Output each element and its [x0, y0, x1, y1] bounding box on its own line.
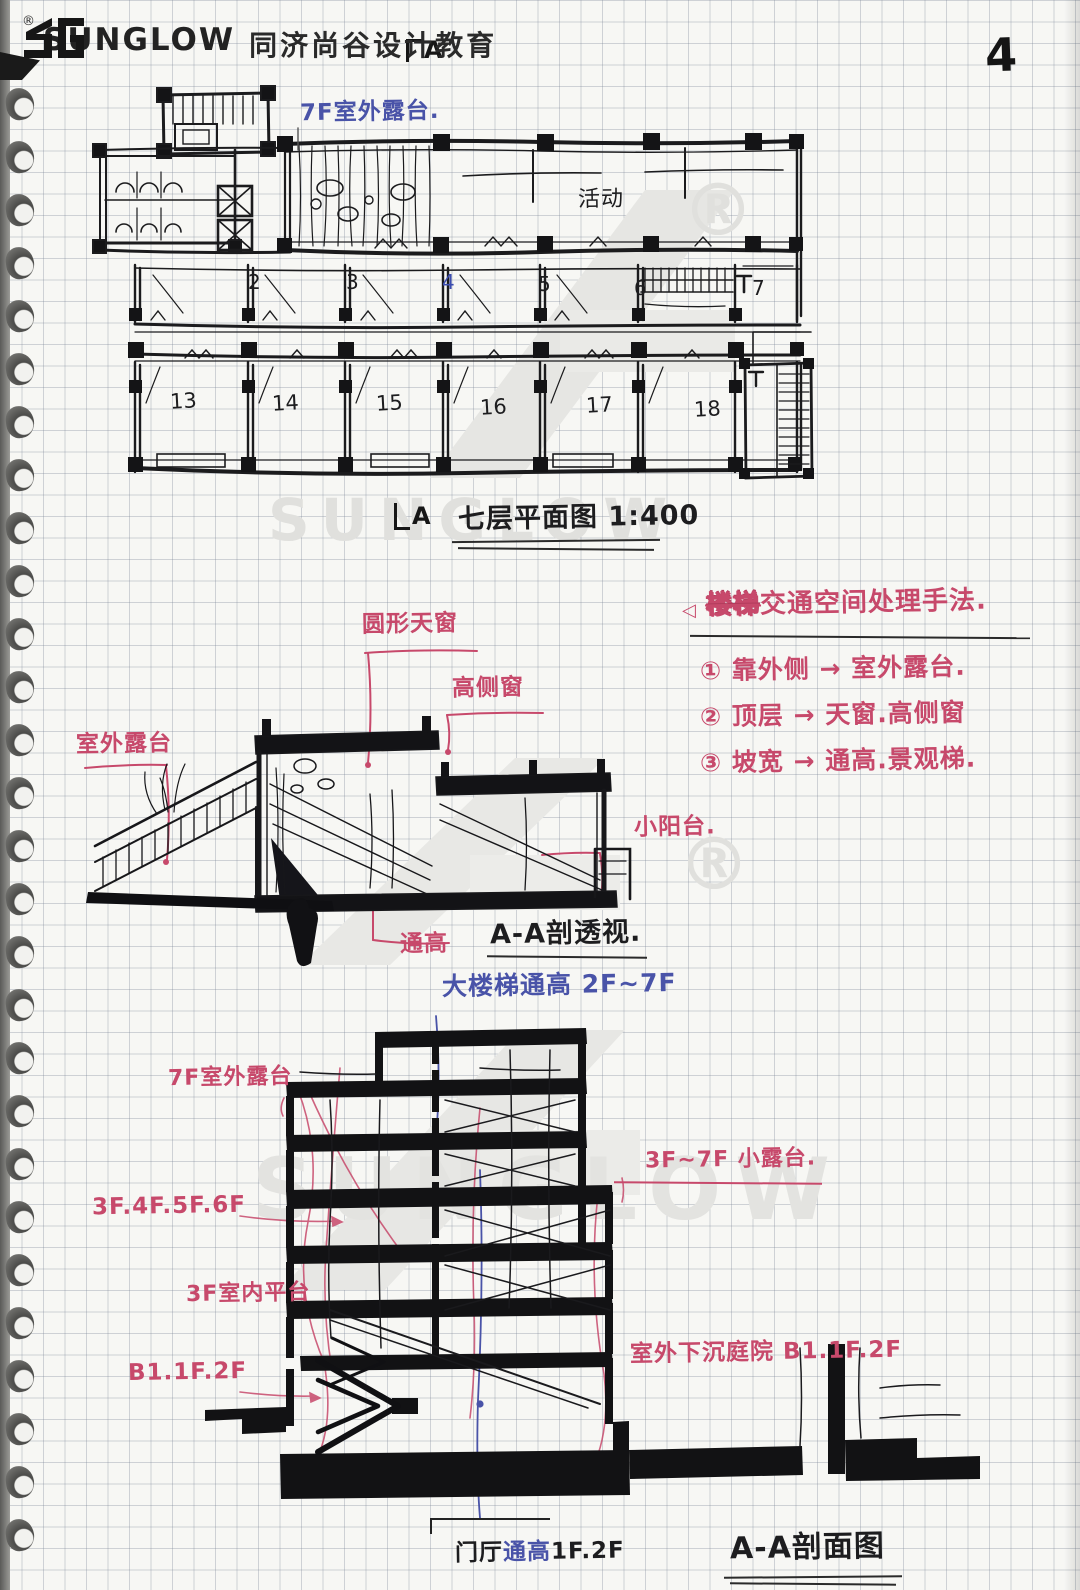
- plan-room-number: 2: [248, 272, 261, 293]
- binding-hole: [4, 1146, 36, 1182]
- binding-hole: [4, 298, 36, 334]
- binding-hole: [4, 1093, 36, 1129]
- binding-hole: [4, 775, 36, 811]
- persp-label-atrium: 通高: [400, 932, 448, 957]
- plan-room-number: 5: [538, 274, 551, 295]
- binding-hole: [4, 1358, 36, 1394]
- binding-hole: [4, 1199, 36, 1235]
- persp-title: A-A剖透视.: [490, 919, 642, 950]
- plan-room-number: 3: [346, 272, 359, 293]
- sunglow-logo-icon: [22, 14, 88, 62]
- section-label-platform-3f: 3F室内平台: [186, 1281, 311, 1306]
- plan-title: 七层平面图 1:400: [458, 502, 700, 535]
- binding-hole: [4, 192, 36, 228]
- header-brand: ® SUNGLOW 同济尚谷设计教育: [22, 14, 497, 64]
- binding-hole: [4, 245, 36, 281]
- binding-hole: [4, 457, 36, 493]
- plan-room-number: 18: [693, 397, 721, 420]
- plan-terrace-note: 7F室外露台.: [300, 99, 440, 126]
- binding-hole: [4, 1305, 36, 1341]
- page-number: 4: [984, 27, 1018, 82]
- plan-room-number: 15: [375, 391, 403, 414]
- binding-hole: [4, 987, 36, 1023]
- brand-subtitle: 同济尚谷设计教育: [249, 24, 497, 64]
- methods-item: ① 靠外侧 → 室外露台.: [700, 654, 966, 685]
- binding-hole: [4, 139, 36, 175]
- binding-hole: [4, 86, 36, 122]
- section-stair-atrium-note: 大楼梯通高 2F~7F: [442, 970, 677, 1000]
- plan-activity-label: 活动: [578, 188, 624, 212]
- persp-label-terrace: 室外露台: [76, 731, 172, 757]
- plan-room-number: 16: [479, 395, 507, 418]
- section-title: A-A剖面图: [730, 1531, 885, 1565]
- binding-hole: [4, 669, 36, 705]
- binding-hole: [4, 828, 36, 864]
- section-label-floors: 3F.4F.5F.6F: [92, 1193, 246, 1220]
- persp-label-high-window: 高侧窗: [452, 675, 524, 700]
- binding-holes: [6, 88, 34, 1572]
- binding-hole: [4, 1517, 36, 1553]
- notebook-page: SUNGLOW SUNGLOW ® ® ® SUNGLOW 同济尚谷设计教育 4…: [0, 0, 1080, 1590]
- building-section-drawing: [180, 1008, 980, 1528]
- binding-hole: [4, 934, 36, 970]
- plan-room-number: 14: [271, 391, 299, 414]
- plan-room-number: 13: [169, 389, 197, 412]
- binding-hole: [4, 563, 36, 599]
- binding-hole: [4, 1040, 36, 1076]
- binding-hole: [4, 1464, 36, 1500]
- binding-hole: [4, 722, 36, 758]
- plan-room-number: 17: [585, 393, 613, 416]
- section-label-small-terrace: 3F~7F 小露台.: [645, 1147, 817, 1173]
- section-label-hall-atrium: 门厅通高1F.2F: [455, 1539, 625, 1566]
- binding-hole: [4, 510, 36, 546]
- callout-bracket: [430, 1518, 550, 1534]
- plan-room-number: 7: [752, 278, 765, 299]
- perspective-section-drawing: [70, 598, 660, 958]
- methods-item: ③ 坡宽 → 通高.景观梯.: [700, 746, 977, 777]
- section-cut-marker-bottom: A: [394, 502, 431, 530]
- binding-hole: [4, 1252, 36, 1288]
- methods-item: ② 顶层 → 天窗.高侧窗: [700, 700, 966, 731]
- cut-mark-icon: [394, 503, 410, 530]
- floor-plan-drawing: [85, 80, 825, 510]
- binding-hole: [4, 404, 36, 440]
- methods-heading: 楼梯交通空间处理手法.: [706, 588, 987, 620]
- section-label-sunken-courtyard: 室外下沉庭院 B1.1F.2F: [630, 1338, 902, 1367]
- binding-hole: [4, 1411, 36, 1447]
- section-label-b1: B1.1F.2F: [128, 1359, 247, 1385]
- persp-label-balcony: 小阳台.: [634, 814, 716, 840]
- binding-hole: [4, 881, 36, 917]
- persp-label-skylight: 圆形天窗: [362, 611, 458, 637]
- triangle-bullet-icon: ◁: [682, 602, 696, 621]
- binding-hole: [4, 616, 36, 652]
- binding-hole: [4, 351, 36, 387]
- plan-room-number: 6: [634, 278, 647, 299]
- plan-room-number: 4: [442, 272, 455, 293]
- section-label-terrace-7f: 7F室外露台: [168, 1065, 293, 1090]
